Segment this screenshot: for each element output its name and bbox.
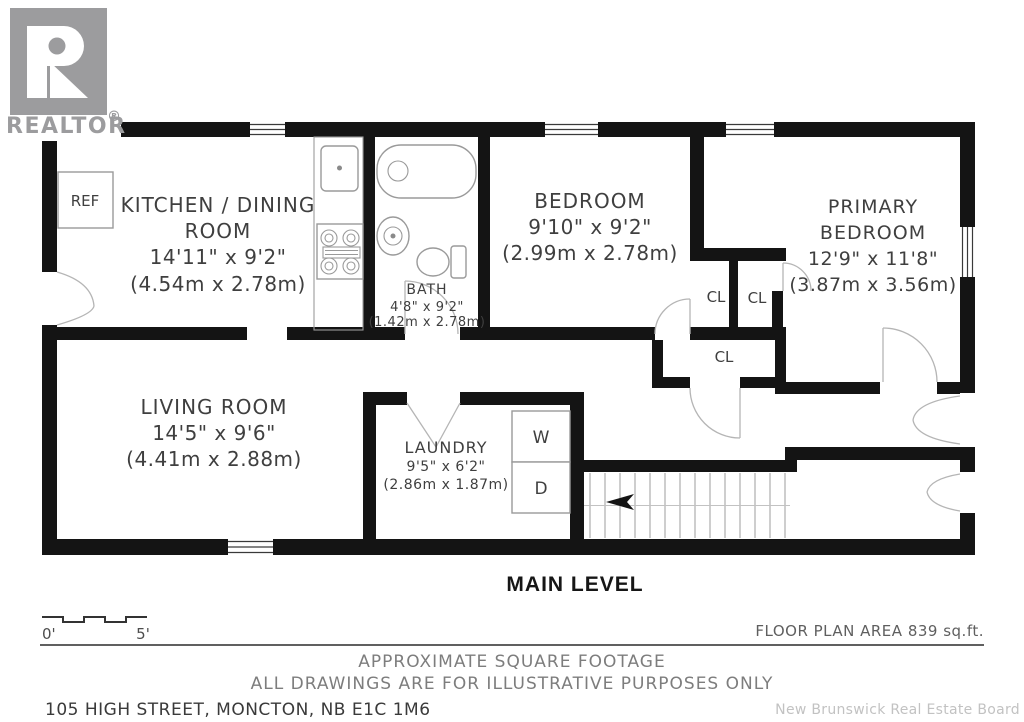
door-opening bbox=[42, 272, 57, 325]
wall bbox=[570, 392, 584, 539]
closet-label: CL bbox=[707, 288, 726, 306]
wall bbox=[478, 137, 490, 340]
property-address: 105 HIGH STREET, MONCTON, NB E1C 1M6 bbox=[45, 700, 431, 720]
svg-text:KITCHEN / DINING: KITCHEN / DINING bbox=[121, 193, 316, 217]
svg-text:9'5" x 6'2": 9'5" x 6'2" bbox=[407, 459, 486, 475]
kitchen-label: KITCHEN / DINING ROOM 14'11" x 9'2" (4.5… bbox=[121, 193, 316, 296]
scale-start-label: 0' bbox=[42, 625, 56, 643]
bath-sink-drain bbox=[391, 234, 396, 239]
level-title: MAIN LEVEL bbox=[506, 573, 643, 596]
window bbox=[726, 122, 774, 137]
primary-bedroom-label: PRIMARY BEDROOM 12'9" x 11'8" (3.87m x 3… bbox=[789, 196, 956, 296]
washer-label: W bbox=[533, 428, 550, 448]
toilet-tank bbox=[451, 246, 466, 278]
scale-bar: 0' 5' bbox=[42, 617, 150, 643]
wall bbox=[363, 392, 376, 539]
svg-text:BEDROOM: BEDROOM bbox=[820, 222, 926, 244]
scale-end-label: 5' bbox=[136, 625, 150, 643]
svg-text:14'11" x 9'2": 14'11" x 9'2" bbox=[150, 245, 287, 269]
svg-text:BATH: BATH bbox=[406, 282, 447, 298]
closet-label: CL bbox=[748, 289, 767, 307]
door-swing bbox=[913, 420, 960, 444]
window bbox=[545, 122, 598, 137]
disclaimer-line2: ALL DRAWINGS ARE FOR ILLUSTRATIVE PURPOS… bbox=[251, 674, 774, 694]
svg-text:(4.54m x 2.78m): (4.54m x 2.78m) bbox=[130, 272, 306, 296]
wall bbox=[42, 122, 975, 137]
window bbox=[228, 539, 273, 555]
door-swing bbox=[57, 306, 94, 325]
door-swing bbox=[883, 328, 937, 382]
svg-text:(2.99m x 2.78m): (2.99m x 2.78m) bbox=[502, 241, 678, 265]
svg-text:(4.41m x 2.88m): (4.41m x 2.88m) bbox=[126, 447, 302, 471]
disclaimer-line1: APPROXIMATE SQUARE FOOTAGE bbox=[358, 652, 665, 672]
bath-fixtures bbox=[377, 145, 476, 278]
door-opening bbox=[772, 261, 783, 291]
svg-text:LAUNDRY: LAUNDRY bbox=[404, 438, 487, 457]
wall bbox=[363, 137, 375, 340]
door-opening bbox=[247, 327, 287, 340]
door-swing bbox=[913, 396, 960, 420]
door-opening bbox=[960, 472, 975, 513]
floor-plan-page: W D KITCHEN / DINING ROOM 14'11" x 9'2" … bbox=[0, 0, 1024, 722]
toilet-bowl bbox=[417, 248, 449, 276]
bathtub bbox=[377, 145, 476, 198]
living-room-label: LIVING ROOM 14'5" x 9'6" (4.41m x 2.88m) bbox=[126, 395, 302, 471]
stairs bbox=[584, 473, 790, 538]
sink-drain bbox=[337, 166, 342, 171]
floor-area-label: FLOOR PLAN AREA 839 sq.ft. bbox=[755, 622, 984, 640]
door-opening bbox=[960, 393, 975, 447]
wall bbox=[785, 447, 960, 460]
window bbox=[960, 227, 975, 277]
door-swing bbox=[927, 474, 960, 492]
closet-label: CL bbox=[715, 348, 734, 366]
wall bbox=[583, 460, 797, 472]
dryer-label: D bbox=[534, 479, 547, 499]
floor-plan-image: W D KITCHEN / DINING ROOM 14'11" x 9'2" … bbox=[0, 0, 1024, 722]
wall bbox=[363, 392, 584, 405]
fridge-label: REF bbox=[71, 192, 100, 210]
svg-text:9'10" x 9'2": 9'10" x 9'2" bbox=[528, 215, 652, 239]
svg-text:(1.42m x 2.78m): (1.42m x 2.78m) bbox=[369, 315, 486, 330]
door-swing bbox=[57, 272, 94, 306]
svg-text:PRIMARY: PRIMARY bbox=[828, 196, 918, 218]
realtor-r-counter bbox=[49, 38, 66, 55]
svg-text:14'5" x 9'6": 14'5" x 9'6" bbox=[152, 421, 276, 445]
svg-text:BEDROOM: BEDROOM bbox=[534, 189, 645, 213]
door-swing bbox=[690, 388, 740, 438]
svg-text:LIVING ROOM: LIVING ROOM bbox=[140, 395, 287, 419]
door-opening bbox=[655, 327, 690, 340]
svg-text:4'8" x 9'2": 4'8" x 9'2" bbox=[390, 300, 464, 315]
wall bbox=[729, 261, 738, 327]
laundry-label: LAUNDRY 9'5" x 6'2" (2.86m x 1.87m) bbox=[383, 438, 508, 493]
wall bbox=[690, 248, 786, 261]
door-opening bbox=[407, 392, 460, 405]
svg-text:12'9" x 11'8": 12'9" x 11'8" bbox=[808, 248, 938, 270]
wall bbox=[690, 137, 704, 261]
window bbox=[250, 122, 285, 137]
laundry-fixtures: W D bbox=[512, 411, 570, 513]
door-opening bbox=[880, 382, 937, 394]
registered-mark: ® bbox=[107, 109, 123, 125]
door-swing bbox=[927, 492, 960, 511]
door-opening bbox=[690, 377, 740, 388]
bath-label: BATH 4'8" x 9'2" (1.42m x 2.78m) bbox=[369, 282, 486, 330]
wall bbox=[42, 539, 975, 555]
bedroom-label: BEDROOM 9'10" x 9'2" (2.99m x 2.78m) bbox=[502, 189, 678, 265]
wall bbox=[775, 382, 975, 394]
svg-text:(2.86m x 1.87m): (2.86m x 1.87m) bbox=[383, 477, 508, 493]
svg-text:(3.87m x 3.56m): (3.87m x 3.56m) bbox=[789, 274, 956, 296]
board-attribution: New Brunswick Real Estate Board bbox=[775, 702, 1020, 718]
svg-text:ROOM: ROOM bbox=[185, 219, 252, 243]
